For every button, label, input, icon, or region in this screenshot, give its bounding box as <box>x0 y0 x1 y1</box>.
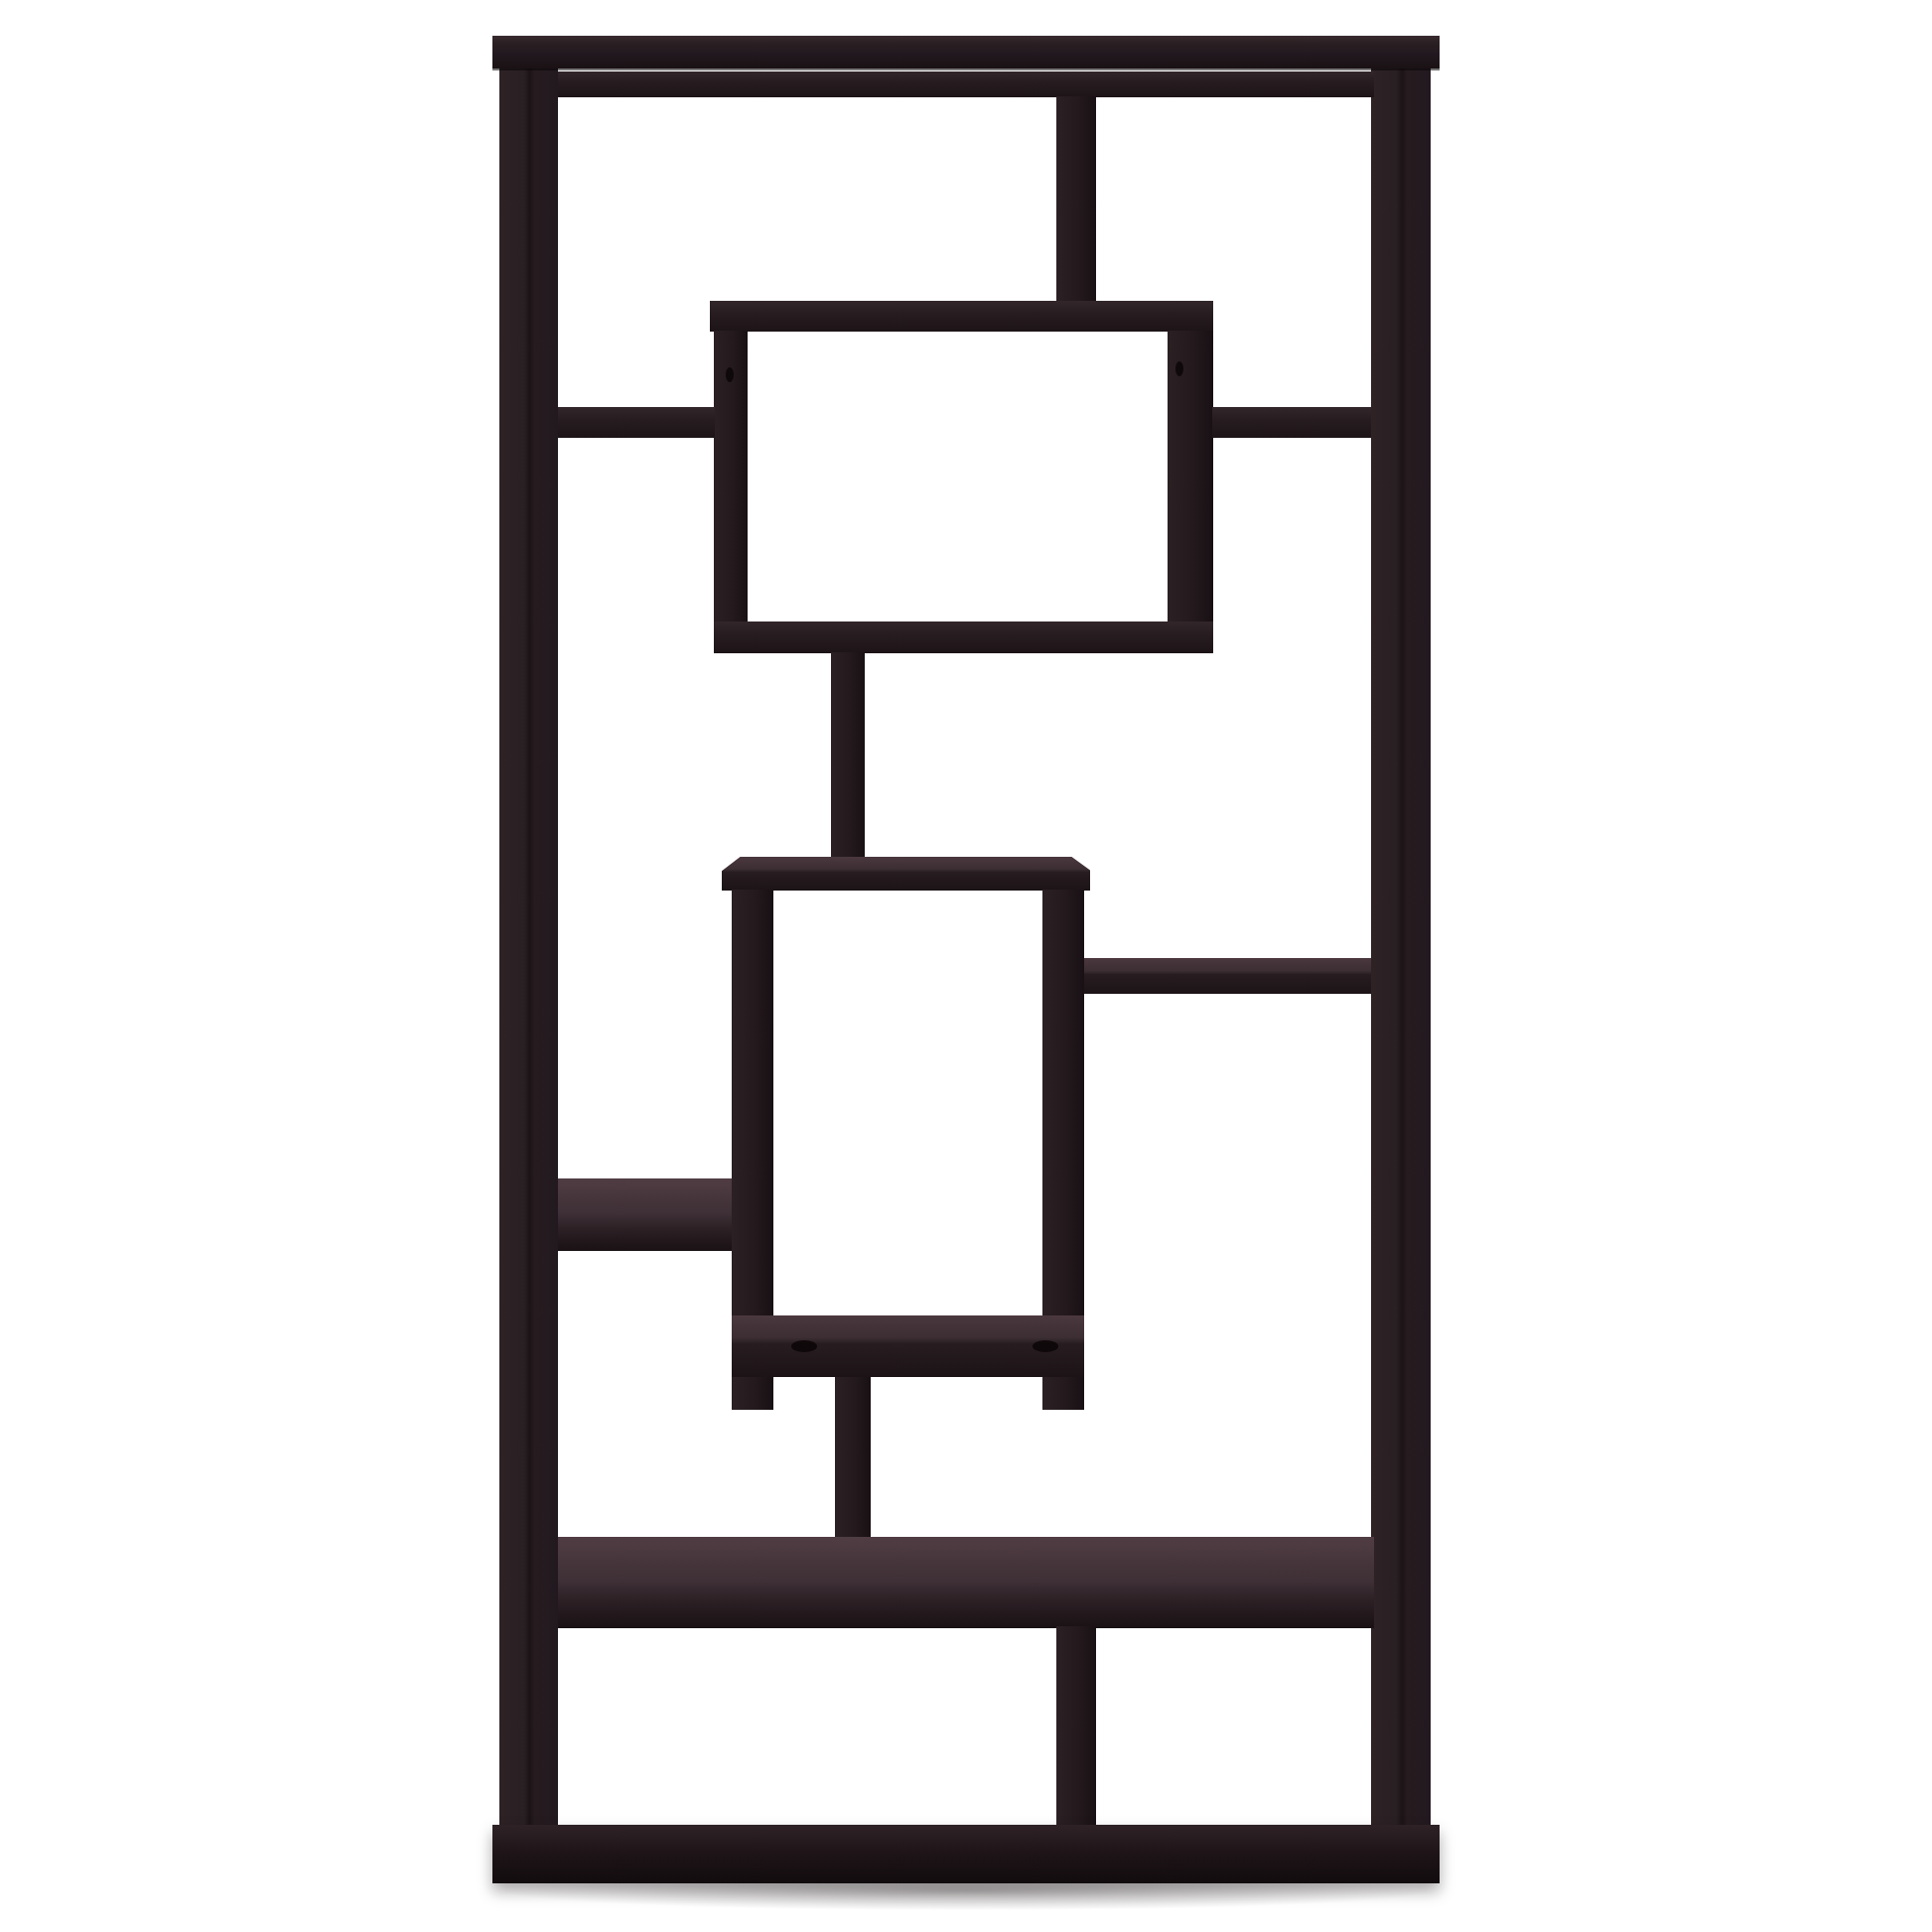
base-top-board <box>558 1765 1374 1825</box>
low-divider <box>835 1377 871 1541</box>
upper-box-right-wall <box>1168 331 1213 623</box>
upper-right-rail <box>1212 407 1371 438</box>
top-cap <box>492 36 1440 69</box>
base-plinth <box>492 1825 1440 1883</box>
lower-box-bottom-bar <box>732 1315 1084 1377</box>
mid-right-rail <box>1084 958 1371 994</box>
top-shelf <box>558 71 1374 97</box>
right-post <box>1371 68 1431 1847</box>
lower-box-bottom-hole-right <box>1033 1340 1058 1352</box>
top-divider <box>1056 96 1096 303</box>
upper-box-top-bar <box>710 301 1213 332</box>
mid-left-shelf <box>558 1178 732 1251</box>
upper-left-rail <box>558 407 715 438</box>
upper-box-left-wall-hole <box>726 367 734 382</box>
lower-box-top-bar <box>722 857 1090 891</box>
upper-box-bottom-bar <box>714 621 1213 653</box>
middle-divider <box>831 652 865 858</box>
upper-box-right-wall-hole <box>1175 361 1183 376</box>
geometric-bookcase <box>0 0 1932 1932</box>
left-post <box>499 68 558 1847</box>
lower-box-bottom-hole-left <box>791 1340 817 1352</box>
bottom-shelf <box>558 1537 1374 1628</box>
bookcase-product-photo <box>0 0 1932 1932</box>
